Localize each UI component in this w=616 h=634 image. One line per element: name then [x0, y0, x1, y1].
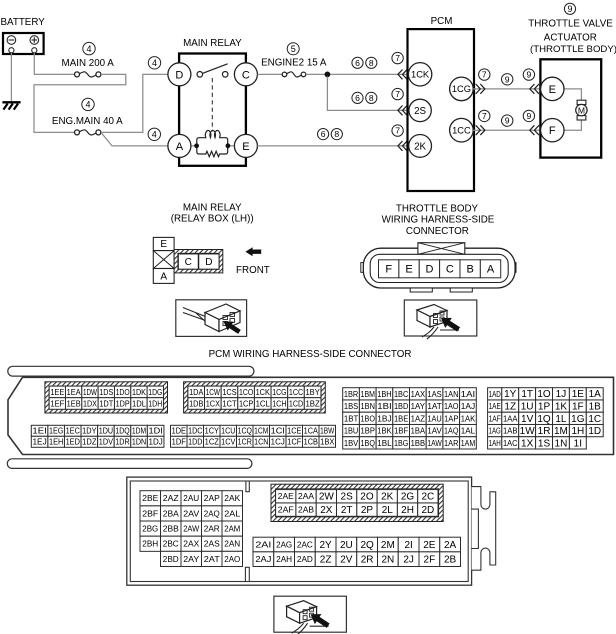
svg-text:1CK: 1CK: [411, 70, 430, 80]
svg-text:1BU: 1BU: [344, 426, 358, 436]
svg-text:2R: 2R: [361, 555, 374, 566]
svg-text:1AW: 1AW: [427, 438, 442, 448]
svg-text:7: 7: [482, 111, 487, 121]
svg-text:1DQ: 1DQ: [115, 426, 130, 436]
svg-text:1DT: 1DT: [99, 398, 114, 408]
svg-text:9: 9: [527, 111, 532, 121]
svg-text:1CC: 1CC: [452, 126, 471, 136]
svg-text:1A: 1A: [589, 389, 602, 400]
svg-text:1AJ: 1AJ: [461, 401, 475, 411]
svg-text:2V: 2V: [340, 555, 353, 566]
svg-text:2BG: 2BG: [142, 524, 158, 534]
svg-text:F: F: [385, 264, 392, 276]
svg-text:1CI: 1CI: [271, 426, 285, 436]
svg-text:1EG: 1EG: [49, 426, 64, 436]
svg-text:1AY: 1AY: [411, 401, 426, 411]
svg-text:1CH: 1CH: [272, 398, 286, 408]
svg-text:THROTTLE VALVE: THROTTLE VALVE: [528, 18, 613, 29]
svg-text:1AC: 1AC: [503, 438, 518, 448]
svg-text:D: D: [205, 257, 212, 268]
svg-text:1BZ: 1BZ: [305, 398, 319, 408]
svg-text:1DC: 1DC: [188, 426, 202, 436]
svg-text:1AH: 1AH: [489, 438, 501, 448]
svg-text:1P: 1P: [538, 401, 551, 412]
svg-text:E: E: [405, 264, 412, 276]
svg-text:1D: 1D: [588, 426, 601, 437]
svg-text:2M: 2M: [381, 540, 395, 551]
svg-text:1DI: 1DI: [149, 426, 163, 436]
svg-text:2Y: 2Y: [320, 540, 333, 551]
svg-text:C: C: [185, 257, 192, 268]
svg-text:1CA: 1CA: [304, 426, 318, 436]
svg-text:1BQ: 1BQ: [361, 438, 376, 448]
svg-text:1EF: 1EF: [50, 398, 64, 408]
svg-text:THROTTLE BODY: THROTTLE BODY: [396, 203, 479, 214]
svg-text:2AP: 2AP: [204, 493, 220, 503]
svg-text:2BE: 2BE: [142, 493, 158, 503]
svg-text:1BM: 1BM: [361, 389, 375, 399]
svg-text:1U: 1U: [521, 401, 534, 412]
svg-text:2BC: 2BC: [163, 539, 179, 549]
svg-text:2AW: 2AW: [183, 524, 200, 534]
svg-text:2AI: 2AI: [255, 539, 271, 549]
svg-text:1CG: 1CG: [452, 84, 471, 94]
svg-text:M: M: [578, 105, 585, 115]
svg-text:2F: 2F: [424, 555, 436, 566]
svg-text:2A: 2A: [444, 540, 457, 551]
svg-text:1AI: 1AI: [461, 389, 475, 399]
svg-text:2BA: 2BA: [163, 508, 179, 518]
svg-text:1CL: 1CL: [256, 398, 270, 408]
svg-text:4: 4: [152, 130, 157, 140]
svg-text:7: 7: [395, 89, 400, 99]
svg-text:1DB: 1DB: [189, 398, 204, 408]
svg-text:1AF: 1AF: [489, 413, 501, 423]
svg-text:1DY: 1DY: [82, 426, 97, 436]
svg-text:1CO: 1CO: [239, 387, 254, 397]
svg-text:1BS: 1BS: [344, 401, 359, 411]
svg-text:1CW: 1CW: [206, 387, 221, 397]
svg-text:1AM: 1AM: [461, 438, 475, 448]
svg-text:1BB: 1BB: [411, 438, 426, 448]
svg-text:1AL: 1AL: [461, 426, 476, 436]
svg-text:1AG: 1AG: [489, 426, 501, 436]
svg-text:1DP: 1DP: [116, 398, 130, 408]
svg-text:2L: 2L: [382, 505, 394, 516]
svg-text:A: A: [160, 272, 167, 283]
svg-text:ACTUATOR: ACTUATOR: [544, 33, 597, 44]
svg-text:1C: 1C: [588, 414, 601, 425]
svg-text:2AC: 2AC: [297, 539, 313, 549]
svg-text:1BI: 1BI: [377, 401, 391, 411]
svg-text:2X: 2X: [320, 505, 333, 516]
svg-text:1AZ: 1AZ: [411, 413, 425, 423]
svg-text:1DS: 1DS: [99, 387, 113, 397]
svg-text:1AR: 1AR: [444, 438, 458, 448]
svg-text:7: 7: [395, 126, 400, 136]
svg-text:E: E: [549, 84, 556, 96]
svg-text:2AF: 2AF: [278, 505, 294, 515]
svg-text:1AV: 1AV: [427, 426, 442, 436]
svg-text:1CU: 1CU: [221, 426, 235, 436]
svg-text:1AP: 1AP: [444, 413, 459, 423]
svg-text:1AN: 1AN: [444, 389, 458, 399]
svg-text:9: 9: [527, 70, 532, 80]
svg-text:1AK: 1AK: [461, 413, 476, 423]
svg-text:C: C: [242, 69, 250, 81]
svg-text:1CE: 1CE: [287, 426, 301, 436]
svg-text:1DA: 1DA: [189, 387, 204, 397]
svg-text:1CZ: 1CZ: [205, 437, 219, 447]
svg-text:ENG.MAIN 40 A: ENG.MAIN 40 A: [52, 116, 123, 127]
svg-text:1CB: 1CB: [304, 437, 318, 447]
svg-text:1H: 1H: [571, 426, 584, 437]
svg-text:1AA: 1AA: [503, 413, 518, 423]
svg-text:1CR: 1CR: [238, 437, 252, 447]
svg-text:1DO: 1DO: [116, 387, 130, 397]
svg-text:2AE: 2AE: [278, 491, 294, 501]
svg-text:1DN: 1DN: [132, 437, 146, 447]
svg-text:1CX: 1CX: [206, 398, 221, 408]
svg-text:2AQ: 2AQ: [204, 508, 220, 518]
svg-text:2AA: 2AA: [298, 491, 314, 501]
svg-text:4: 4: [85, 100, 90, 110]
svg-text:1EA: 1EA: [67, 387, 81, 397]
svg-text:1AX: 1AX: [411, 389, 426, 399]
svg-text:ENGINE2 15 A: ENGINE2 15 A: [261, 58, 327, 69]
svg-text:2C: 2C: [421, 492, 434, 503]
svg-text:1BE: 1BE: [394, 413, 409, 423]
svg-text:2AR: 2AR: [204, 524, 220, 534]
svg-text:2AN: 2AN: [224, 539, 240, 549]
svg-text:2B: 2B: [444, 555, 457, 566]
svg-text:1G: 1G: [571, 414, 585, 425]
svg-text:2K: 2K: [414, 141, 426, 152]
svg-text:(RELAY BOX (LH)): (RELAY BOX (LH)): [171, 214, 254, 225]
svg-text:2BD: 2BD: [163, 554, 179, 564]
svg-text:1Y: 1Y: [504, 389, 517, 400]
svg-text:2BH: 2BH: [142, 539, 158, 549]
svg-text:2S: 2S: [414, 106, 426, 117]
svg-text:A: A: [176, 141, 184, 153]
svg-text:9: 9: [567, 4, 572, 14]
svg-text:1EJ: 1EJ: [32, 437, 46, 447]
svg-text:1BG: 1BG: [394, 438, 409, 448]
svg-text:2H: 2H: [401, 505, 414, 516]
svg-text:1DM: 1DM: [132, 426, 146, 436]
svg-text:1AU: 1AU: [427, 413, 441, 423]
svg-text:2I: 2I: [404, 540, 412, 551]
svg-text:1K: 1K: [555, 401, 568, 412]
svg-text:1BX: 1BX: [320, 437, 334, 447]
svg-text:BATTERY: BATTERY: [1, 17, 46, 28]
svg-text:2S: 2S: [341, 492, 354, 503]
svg-text:1CK: 1CK: [256, 387, 271, 397]
svg-text:1BJ: 1BJ: [377, 413, 391, 423]
svg-text:FRONT: FRONT: [236, 265, 270, 276]
svg-text:2N: 2N: [381, 555, 394, 566]
svg-text:1E: 1E: [572, 389, 585, 400]
svg-text:2AH: 2AH: [276, 554, 292, 564]
svg-text:1CD: 1CD: [289, 398, 303, 408]
svg-text:1BL: 1BL: [377, 438, 392, 448]
svg-text:1V: 1V: [521, 414, 534, 425]
svg-text:2D: 2D: [421, 505, 434, 516]
svg-text:1CQ: 1CQ: [238, 426, 252, 436]
svg-text:1BP: 1BP: [361, 426, 376, 436]
svg-text:2AU: 2AU: [183, 493, 199, 503]
svg-text:2T: 2T: [341, 505, 353, 516]
svg-text:2G: 2G: [401, 492, 415, 503]
svg-text:2AJ: 2AJ: [255, 554, 271, 564]
svg-text:1J: 1J: [556, 389, 567, 400]
svg-text:2AT: 2AT: [204, 554, 221, 564]
svg-text:2AS: 2AS: [204, 539, 220, 549]
svg-text:1BV: 1BV: [344, 438, 359, 448]
svg-text:1BC: 1BC: [394, 389, 408, 399]
svg-text:1DH: 1DH: [148, 398, 162, 408]
svg-text:1DJ: 1DJ: [149, 437, 163, 447]
svg-text:6: 6: [355, 58, 360, 68]
svg-text:2Q: 2Q: [360, 540, 374, 551]
svg-text:1BO: 1BO: [361, 413, 376, 423]
svg-text:1AQ: 1AQ: [444, 426, 459, 436]
svg-text:1AD: 1AD: [489, 389, 501, 399]
svg-text:(THROTTLE BODY): (THROTTLE BODY): [530, 44, 616, 55]
svg-text:1CG: 1CG: [272, 387, 287, 397]
svg-text:2AZ: 2AZ: [163, 493, 179, 503]
svg-text:1T: 1T: [521, 389, 533, 400]
svg-text:1M: 1M: [554, 426, 568, 437]
svg-text:1EH: 1EH: [49, 437, 63, 447]
svg-text:1BT: 1BT: [344, 413, 359, 423]
svg-text:PCM: PCM: [431, 16, 453, 27]
svg-text:1CJ: 1CJ: [271, 437, 285, 447]
svg-text:1ED: 1ED: [66, 437, 80, 447]
svg-text:1DE: 1DE: [172, 426, 186, 436]
svg-text:2AX: 2AX: [183, 539, 199, 549]
svg-text:1B: 1B: [589, 401, 602, 412]
svg-text:1DR: 1DR: [115, 437, 129, 447]
svg-text:C: C: [446, 264, 454, 276]
svg-text:8: 8: [369, 58, 374, 68]
svg-text:F: F: [549, 125, 556, 137]
svg-text:1R: 1R: [538, 426, 551, 437]
svg-text:1AS: 1AS: [427, 389, 442, 399]
svg-text:1BW: 1BW: [320, 426, 335, 436]
svg-text:1L: 1L: [555, 414, 567, 425]
svg-text:1DD: 1DD: [188, 437, 202, 447]
svg-text:2AK: 2AK: [224, 493, 240, 503]
svg-text:1BK: 1BK: [377, 426, 392, 436]
svg-text:1X: 1X: [521, 438, 534, 449]
svg-text:D: D: [425, 264, 433, 276]
svg-text:2U: 2U: [340, 540, 353, 551]
svg-text:1CT: 1CT: [222, 398, 237, 408]
svg-text:1CM: 1CM: [254, 426, 268, 436]
svg-text:1EI: 1EI: [32, 426, 46, 436]
svg-text:1BN: 1BN: [361, 401, 375, 411]
svg-text:7: 7: [395, 53, 400, 63]
svg-text:1I: 1I: [574, 438, 582, 449]
svg-text:2AG: 2AG: [276, 539, 292, 549]
svg-text:2BB: 2BB: [163, 524, 179, 534]
svg-text:1BY: 1BY: [305, 387, 320, 397]
svg-text:4: 4: [152, 58, 157, 68]
svg-text:PCM WIRING HARNESS-SIDE CONNEC: PCM WIRING HARNESS-SIDE CONNECTOR: [209, 349, 412, 360]
svg-text:1Q: 1Q: [537, 414, 551, 425]
svg-text:2AY: 2AY: [183, 554, 199, 564]
svg-text:9: 9: [505, 74, 510, 84]
svg-text:1O: 1O: [537, 389, 551, 400]
svg-text:D: D: [175, 69, 183, 81]
svg-text:6: 6: [355, 93, 360, 103]
svg-text:2O: 2O: [360, 492, 374, 503]
svg-text:1W: 1W: [520, 426, 536, 437]
svg-text:2AL: 2AL: [224, 508, 240, 518]
svg-text:A: A: [487, 264, 495, 276]
svg-text:1DL: 1DL: [132, 398, 146, 408]
svg-text:E: E: [160, 239, 167, 250]
svg-text:1BF: 1BF: [394, 426, 408, 436]
svg-text:1CC: 1CC: [289, 387, 303, 397]
svg-text:9: 9: [505, 116, 510, 126]
svg-text:1DK: 1DK: [132, 387, 146, 397]
svg-text:1DV: 1DV: [99, 437, 114, 447]
svg-text:1EB: 1EB: [67, 398, 81, 408]
svg-text:2P: 2P: [361, 505, 374, 516]
svg-text:1CY: 1CY: [205, 426, 219, 436]
svg-text:2J: 2J: [403, 555, 414, 566]
svg-text:1DG: 1DG: [148, 387, 162, 397]
svg-text:1AT: 1AT: [427, 401, 442, 411]
svg-text:1DZ: 1DZ: [82, 437, 96, 447]
svg-text:1AO: 1AO: [444, 401, 459, 411]
svg-text:WIRING HARNESS-SIDE: WIRING HARNESS-SIDE: [382, 215, 495, 226]
svg-text:2W: 2W: [319, 492, 335, 503]
svg-text:1DU: 1DU: [99, 426, 113, 436]
svg-text:MAIN RELAY: MAIN RELAY: [183, 202, 242, 213]
svg-text:1EE: 1EE: [50, 387, 64, 397]
svg-text:8: 8: [369, 93, 374, 103]
svg-text:1F: 1F: [572, 401, 584, 412]
svg-text:4: 4: [86, 44, 91, 54]
svg-text:2BF: 2BF: [142, 508, 158, 518]
svg-text:2E: 2E: [423, 540, 436, 551]
svg-text:B: B: [466, 264, 473, 276]
svg-text:1BH: 1BH: [377, 389, 391, 399]
svg-text:1N: 1N: [555, 438, 568, 449]
svg-text:1CV: 1CV: [221, 437, 235, 447]
svg-text:2Z: 2Z: [320, 555, 332, 566]
svg-text:1BD: 1BD: [394, 401, 408, 411]
svg-text:8: 8: [334, 129, 339, 139]
svg-text:1BR: 1BR: [344, 389, 358, 399]
svg-text:E: E: [242, 141, 249, 153]
svg-text:5: 5: [291, 44, 296, 54]
svg-text:1CP: 1CP: [239, 398, 254, 408]
svg-text:1DF: 1DF: [172, 437, 186, 447]
svg-text:MAIN 200 A: MAIN 200 A: [62, 58, 115, 69]
svg-text:2K: 2K: [381, 492, 394, 503]
svg-text:1CF: 1CF: [287, 437, 301, 447]
svg-text:1S: 1S: [538, 438, 551, 449]
svg-text:2AO: 2AO: [224, 554, 240, 564]
svg-text:1AB: 1AB: [503, 426, 518, 436]
svg-text:1CS: 1CS: [222, 387, 237, 397]
svg-text:2AV: 2AV: [183, 508, 199, 518]
svg-text:1DW: 1DW: [83, 387, 98, 397]
svg-text:1DX: 1DX: [83, 398, 97, 408]
svg-text:2AM: 2AM: [224, 524, 240, 534]
svg-text:MAIN RELAY: MAIN RELAY: [183, 38, 242, 49]
svg-text:1AE: 1AE: [489, 401, 501, 411]
svg-text:1CN: 1CN: [254, 437, 268, 447]
svg-text:CONNECTOR: CONNECTOR: [406, 226, 469, 237]
svg-text:2AB: 2AB: [298, 505, 314, 515]
svg-text:1Z: 1Z: [504, 401, 516, 412]
svg-text:2AD: 2AD: [297, 554, 313, 564]
svg-text:1BA: 1BA: [411, 426, 426, 436]
svg-text:7: 7: [482, 70, 487, 80]
svg-text:6: 6: [321, 129, 326, 139]
svg-text:1EC: 1EC: [66, 426, 80, 436]
